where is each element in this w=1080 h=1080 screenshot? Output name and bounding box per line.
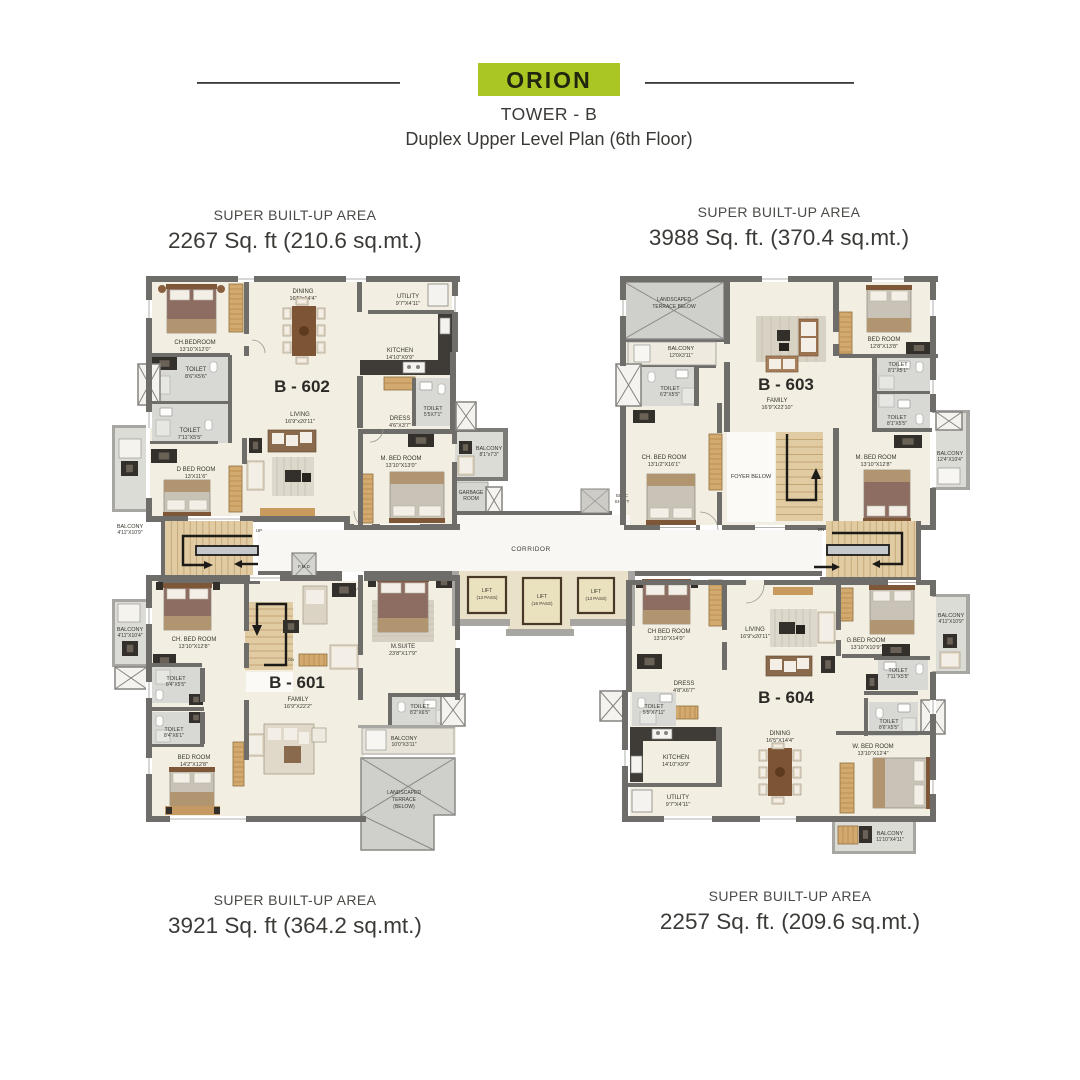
svg-text:UTILITY: UTILITY [667, 795, 689, 801]
svg-text:13'10"X14'0": 13'10"X14'0" [653, 636, 684, 642]
svg-text:8'2"X6'5": 8'2"X6'5" [410, 710, 430, 716]
svg-text:LIFT: LIFT [591, 589, 601, 595]
svg-text:16'9"x20'11": 16'9"x20'11" [285, 419, 315, 425]
svg-text:LANDSCAPED: LANDSCAPED [657, 297, 691, 303]
svg-text:TOWER - B: TOWER - B [501, 104, 598, 124]
svg-text:(BELOW): (BELOW) [393, 804, 415, 810]
svg-text:11'10"X4'11": 11'10"X4'11" [876, 837, 904, 843]
svg-text:DN: DN [288, 657, 294, 662]
svg-text:BALCONY: BALCONY [668, 346, 695, 352]
svg-text:LIVING: LIVING [290, 412, 310, 418]
svg-text:4'11"X10'9": 4'11"X10'9" [938, 619, 963, 625]
svg-text:13'10"X12'4": 13'10"X12'4" [857, 751, 888, 757]
svg-text:23'8"X17'9": 23'8"X17'9" [389, 651, 417, 657]
svg-text:8'6"X5'5": 8'6"X5'5" [879, 725, 899, 731]
svg-text:TOILET: TOILET [180, 428, 201, 434]
svg-text:3988 Sq. ft. (370.4 sq.mt.): 3988 Sq. ft. (370.4 sq.mt.) [649, 225, 909, 250]
svg-text:SUPER BUILT-UP AREA: SUPER BUILT-UP AREA [214, 892, 377, 908]
svg-text:D BED ROOM: D BED ROOM [177, 467, 216, 473]
svg-text:W. BED ROOM: W. BED ROOM [852, 744, 893, 750]
svg-text:16'9"X22'10": 16'9"X22'10" [761, 405, 792, 411]
svg-text:LANDSCAPED: LANDSCAPED [387, 790, 421, 796]
svg-text:13'1/2"X16'1": 13'1/2"X16'1" [648, 462, 681, 468]
svg-text:3921 Sq. ft (364.2 sq.mt.): 3921 Sq. ft (364.2 sq.mt.) [168, 913, 422, 938]
svg-text:B - 604: B - 604 [758, 688, 814, 707]
svg-text:Duplex Upper Level Plan (6th F: Duplex Upper Level Plan (6th Floor) [405, 129, 692, 149]
svg-text:LIFT: LIFT [482, 588, 492, 594]
svg-text:CH.BEDROOM: CH.BEDROOM [174, 340, 215, 346]
svg-text:CH BED ROOM: CH BED ROOM [647, 629, 690, 635]
svg-text:SUPER BUILT-UP AREA: SUPER BUILT-UP AREA [698, 204, 861, 220]
svg-text:8'1"X5'1": 8'1"X5'1" [888, 368, 908, 374]
svg-text:FAMILY: FAMILY [288, 697, 309, 703]
svg-text:CH. BED ROOM: CH. BED ROOM [172, 637, 217, 643]
svg-text:LIFT: LIFT [537, 594, 547, 600]
svg-text:KITCHEN: KITCHEN [387, 348, 413, 354]
svg-text:4'11"X10'4": 4'11"X10'4" [117, 633, 142, 639]
svg-text:6'2"X5'5": 6'2"X5'5" [660, 392, 680, 398]
svg-text:13'10"X13'0": 13'10"X13'0" [385, 463, 416, 469]
svg-text:13'10"X10'9": 13'10"X10'9" [850, 645, 881, 651]
svg-text:M.SUITE: M.SUITE [391, 644, 415, 650]
svg-text:12'8"X13'8": 12'8"X13'8" [870, 344, 898, 350]
svg-text:TERRACE BELOW: TERRACE BELOW [652, 304, 696, 310]
svg-text:CH. BED ROOM: CH. BED ROOM [642, 455, 687, 461]
svg-text:13'10"X12'0": 13'10"X12'0" [179, 347, 210, 353]
svg-text:CORRIDOR: CORRIDOR [511, 546, 550, 553]
svg-text:TERRACE: TERRACE [392, 797, 417, 803]
svg-text:DRESS: DRESS [674, 681, 695, 687]
svg-text:B - 602: B - 602 [274, 377, 330, 396]
svg-text:DINING: DINING [293, 289, 314, 295]
svg-text:12'4"X10'4": 12'4"X10'4" [937, 457, 963, 463]
svg-text:G.BED ROOM: G.BED ROOM [846, 638, 885, 644]
svg-text:4'8"X6'7": 4'8"X6'7" [673, 688, 695, 694]
svg-text:DINING: DINING [770, 731, 791, 737]
svg-text:F.M.D: F.M.D [298, 564, 310, 569]
svg-text:14'10"X9'9": 14'10"X9'9" [662, 762, 690, 768]
svg-text:8'1"x7'3": 8'1"x7'3" [479, 452, 498, 458]
svg-text:9'7"X4'11": 9'7"X4'11" [396, 301, 421, 307]
svg-text:SUPER BUILT-UP AREA: SUPER BUILT-UP AREA [214, 207, 377, 223]
svg-text:M. BED ROOM: M. BED ROOM [855, 455, 896, 461]
svg-text:B - 603: B - 603 [758, 375, 814, 394]
svg-text:LIVING: LIVING [745, 627, 765, 633]
svg-text:12'0X3'11": 12'0X3'11" [669, 353, 693, 359]
svg-text:13'10"X12'8": 13'10"X12'8" [860, 462, 891, 468]
svg-text:DN: DN [818, 527, 825, 532]
svg-text:(13 PASS): (13 PASS) [586, 596, 607, 601]
svg-text:M. BED ROOM: M. BED ROOM [380, 456, 421, 462]
svg-text:DRESS: DRESS [390, 416, 411, 422]
svg-text:FAMILY: FAMILY [767, 398, 788, 404]
svg-text:9'7"X4'11": 9'7"X4'11" [666, 802, 691, 808]
svg-text:BED ROOM: BED ROOM [868, 337, 901, 343]
svg-text:7'11"X5'5": 7'11"X5'5" [887, 674, 910, 680]
svg-text:4'6"X3'7": 4'6"X3'7" [389, 423, 411, 429]
svg-text:ROOM: ROOM [463, 496, 479, 502]
svg-text:13'X11'6": 13'X11'6" [185, 474, 208, 480]
svg-text:BED ROOM: BED ROOM [178, 755, 211, 761]
svg-text:13'10"X12'8": 13'10"X12'8" [178, 644, 209, 650]
svg-text:B - 601: B - 601 [269, 673, 325, 692]
svg-text:2257 Sq. ft. (209.6 sq.mt.): 2257 Sq. ft. (209.6 sq.mt.) [660, 909, 920, 934]
svg-text:10'0"X3'11": 10'0"X3'11" [391, 742, 416, 748]
svg-text:KITCHEN: KITCHEN [663, 755, 689, 761]
svg-text:5'5"X7'11": 5'5"X7'11" [643, 710, 666, 716]
svg-text:8'4"X5'5": 8'4"X5'5" [166, 682, 186, 688]
svg-text:7'11"X5'5": 7'11"X5'5" [178, 435, 203, 441]
svg-text:FOYER BELOW: FOYER BELOW [731, 474, 772, 480]
svg-text:8'1"X5'5": 8'1"X5'5" [887, 421, 907, 427]
svg-text:ORION: ORION [506, 67, 591, 93]
svg-text:(16 PASS): (16 PASS) [532, 601, 553, 606]
svg-text:UP: UP [256, 528, 262, 533]
svg-text:16'9"x20'11": 16'9"x20'11" [740, 634, 770, 640]
svg-text:UTILITY: UTILITY [397, 294, 419, 300]
svg-text:8'4"X6'1": 8'4"X6'1" [164, 733, 184, 739]
svg-text:SUPER BUILT-UP AREA: SUPER BUILT-UP AREA [709, 888, 872, 904]
svg-text:TOILET: TOILET [186, 367, 207, 373]
svg-text:16'9"X22'2": 16'9"X22'2" [284, 704, 312, 710]
svg-text:4'11"X10'9": 4'11"X10'9" [117, 530, 142, 536]
svg-text:5'5X7'1": 5'5X7'1" [424, 412, 442, 418]
svg-text:(13 PASS): (13 PASS) [477, 595, 498, 600]
svg-text:8'6"X5'6": 8'6"X5'6" [185, 374, 207, 380]
svg-text:2267 Sq. ft (210.6 sq.mt.): 2267 Sq. ft (210.6 sq.mt.) [168, 228, 422, 253]
